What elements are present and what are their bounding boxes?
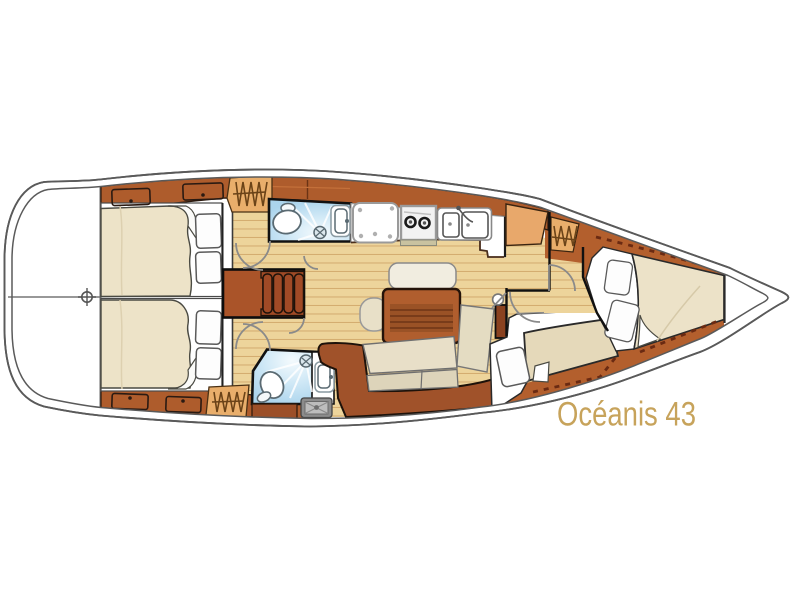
svg-text:Océanis 43: Océanis 43	[557, 396, 696, 434]
